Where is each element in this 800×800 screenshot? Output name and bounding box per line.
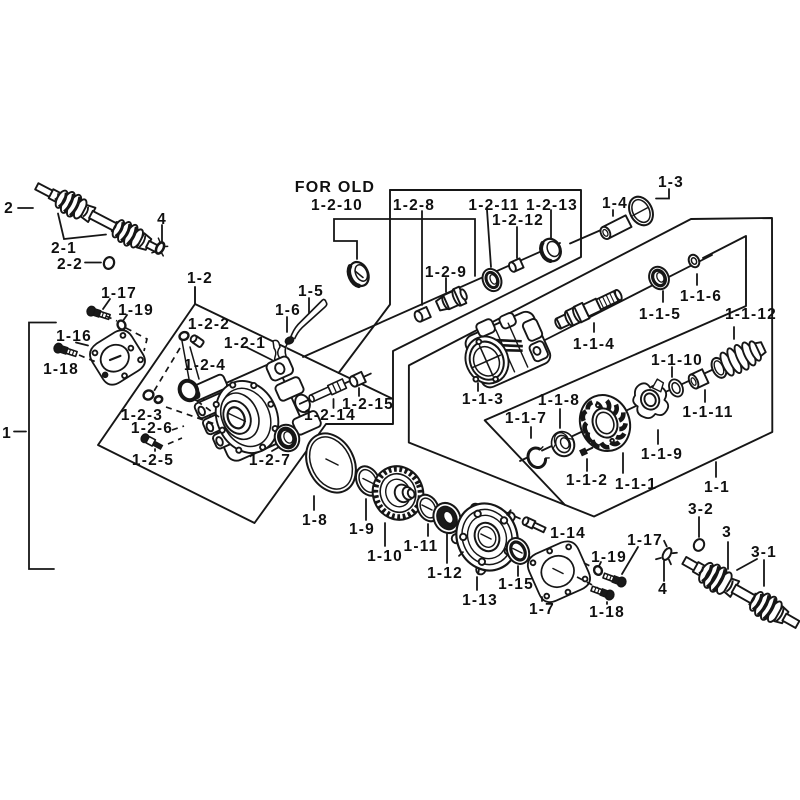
svg-text:1-4: 1-4 <box>602 195 628 212</box>
svg-text:1-6: 1-6 <box>275 302 301 319</box>
svg-text:1-7: 1-7 <box>529 601 555 618</box>
svg-text:1-1-1: 1-1-1 <box>615 476 657 493</box>
svg-text:1-2-12: 1-2-12 <box>492 212 544 229</box>
svg-text:1-11: 1-11 <box>404 538 439 555</box>
svg-text:1-1-9: 1-1-9 <box>641 446 683 463</box>
svg-text:1-1-3: 1-1-3 <box>462 391 504 408</box>
svg-text:2: 2 <box>4 200 14 217</box>
svg-text:1-1-12: 1-1-12 <box>725 306 777 323</box>
svg-text:1-2-1: 1-2-1 <box>224 335 266 352</box>
svg-text:1-2: 1-2 <box>187 270 213 287</box>
svg-text:4: 4 <box>157 211 167 228</box>
svg-text:1-1-4: 1-1-4 <box>573 336 615 353</box>
svg-text:4: 4 <box>658 581 668 598</box>
svg-text:3-1: 3-1 <box>751 544 777 561</box>
svg-text:1-13: 1-13 <box>462 592 498 609</box>
svg-text:FOR OLD: FOR OLD <box>295 179 375 196</box>
svg-text:1-3: 1-3 <box>658 174 684 191</box>
svg-text:1-2-5: 1-2-5 <box>132 452 174 469</box>
svg-text:1-1-10: 1-1-10 <box>651 352 703 369</box>
svg-text:1-12: 1-12 <box>427 565 463 582</box>
svg-text:1-2-10: 1-2-10 <box>311 197 363 214</box>
svg-text:1-1: 1-1 <box>704 479 730 496</box>
svg-text:1-2-7: 1-2-7 <box>249 452 291 469</box>
svg-text:1-2-4: 1-2-4 <box>184 357 226 374</box>
svg-text:1-14: 1-14 <box>550 525 586 542</box>
svg-text:1-1-8: 1-1-8 <box>538 392 580 409</box>
svg-text:3-2: 3-2 <box>688 501 714 518</box>
svg-text:1-2-2: 1-2-2 <box>188 316 230 333</box>
svg-text:2-1: 2-1 <box>51 240 77 257</box>
svg-text:1-1-7: 1-1-7 <box>505 410 547 427</box>
svg-text:1-5: 1-5 <box>298 283 324 300</box>
svg-text:1-1-2: 1-1-2 <box>566 472 608 489</box>
svg-text:1-1-6: 1-1-6 <box>680 288 722 305</box>
svg-text:2-2: 2-2 <box>57 256 83 273</box>
svg-text:1-10: 1-10 <box>367 548 403 565</box>
svg-text:3: 3 <box>722 524 732 541</box>
svg-text:1-19: 1-19 <box>118 302 154 319</box>
svg-text:1-2-15: 1-2-15 <box>342 396 394 413</box>
svg-text:1: 1 <box>2 425 12 442</box>
svg-text:1-17: 1-17 <box>101 285 137 302</box>
svg-text:1-15: 1-15 <box>498 576 534 593</box>
svg-text:1-18: 1-18 <box>43 361 79 378</box>
svg-text:1-18: 1-18 <box>589 604 625 621</box>
svg-text:1-8: 1-8 <box>302 512 328 529</box>
svg-text:1-2-8: 1-2-8 <box>393 197 435 214</box>
svg-text:1-1-11: 1-1-11 <box>682 404 733 421</box>
svg-text:1-19: 1-19 <box>591 549 627 566</box>
svg-text:1-2-9: 1-2-9 <box>425 264 467 281</box>
svg-text:1-9: 1-9 <box>349 521 375 538</box>
svg-text:1-2-6: 1-2-6 <box>131 420 173 437</box>
svg-text:1-16: 1-16 <box>56 328 92 345</box>
svg-text:1-17: 1-17 <box>627 532 663 549</box>
svg-text:1-1-5: 1-1-5 <box>639 306 681 323</box>
